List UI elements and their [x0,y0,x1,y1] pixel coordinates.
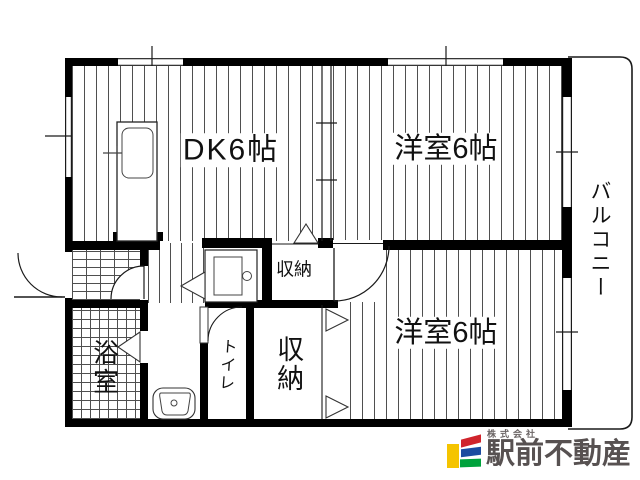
room-label-bathroom: 浴室 [90,337,117,399]
window-bedroom2-balcony [556,278,578,390]
window-dk-top [118,46,183,66]
floorplan-line-work [0,0,640,480]
window-bedroom1-balcony [556,97,578,207]
room-label-bedroom2: 洋室6帖 [392,317,499,349]
toilet-fixture [153,388,195,419]
entrance-door-arc [18,253,62,297]
window-dk-left [45,97,72,177]
sliding-partition-dk-bedroom1 [316,66,337,241]
bathroom-door-symbol [118,332,140,362]
bedroom2-door-arc [334,246,389,301]
logo-yellow-bar [447,444,459,468]
room-label-storage-large: 収納 [274,333,302,395]
washroom-door-symbol [181,272,205,299]
room-label-storage-small: 収納 [274,260,314,281]
kitchen-sink-unit [103,122,157,241]
room-label-toilet: トイレ [215,335,236,394]
storage-large-bifold-doors [326,309,348,418]
window-bedroom1-top [388,46,503,66]
logo-company-name: 駅前不動産 [486,440,631,469]
room-label-bedroom1: 洋室6帖 [392,133,499,165]
room-label-balcony: バルコニー [588,178,610,302]
bathroom-door-opening [140,331,148,363]
storage-small-fold-door [294,224,318,243]
floorplan-canvas: DK6帖 洋室6帖 洋室6帖 バルコニー 浴室 トイレ 収納 収納 株式会社 駅… [0,0,640,480]
room-label-dk: DK6帖 [181,133,281,167]
toilet-door-leaf [200,307,208,343]
washer-pan-unit [205,250,257,302]
logo-green-bar [460,459,481,468]
